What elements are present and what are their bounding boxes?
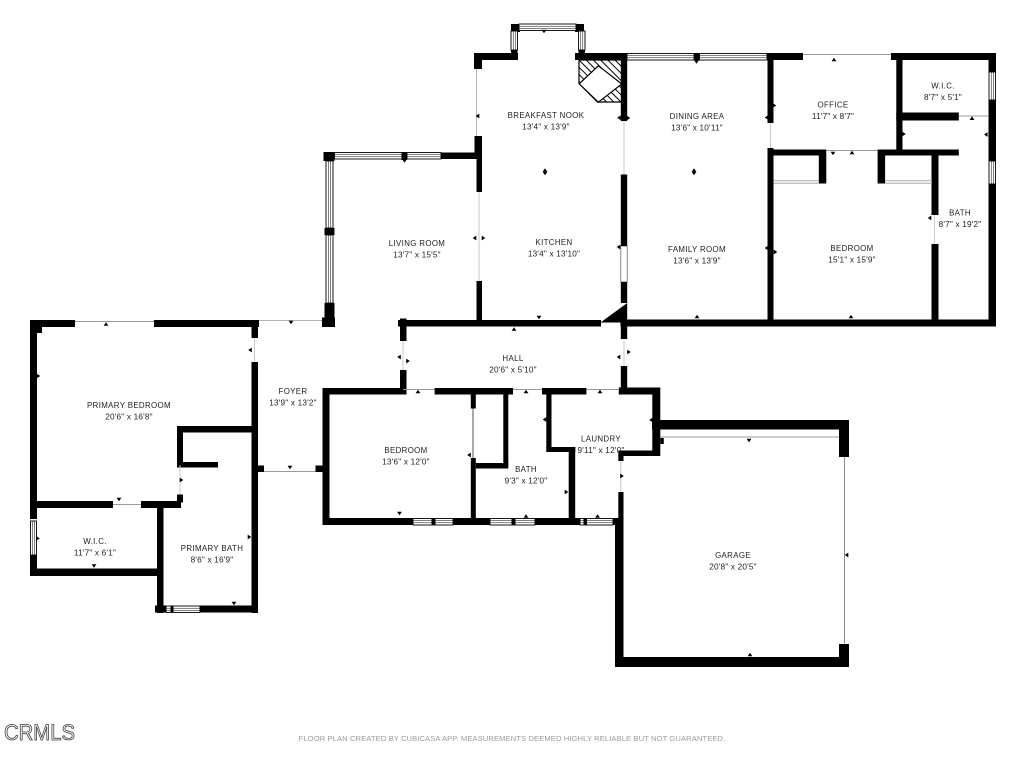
svg-text:OFFICE: OFFICE (817, 101, 848, 110)
svg-text:FLOOR PLAN CREATED BY CUBICASA: FLOOR PLAN CREATED BY CUBICASA APP. MEAS… (299, 734, 726, 743)
svg-text:BREAKFAST NOOK: BREAKFAST NOOK (508, 111, 585, 120)
svg-text:LAUNDRY: LAUNDRY (581, 435, 621, 444)
svg-text:DINING AREA: DINING AREA (670, 112, 725, 121)
svg-text:W.I.C.: W.I.C. (83, 537, 107, 546)
svg-text:BATH: BATH (515, 465, 537, 474)
svg-text:13'6" x 10'11": 13'6" x 10'11" (671, 124, 723, 133)
svg-text:13'4" x 13'9": 13'4" x 13'9" (522, 123, 570, 132)
svg-text:13'6" x 13'9": 13'6" x 13'9" (673, 257, 721, 266)
svg-text:BEDROOM: BEDROOM (384, 446, 427, 455)
svg-text:20'8" x 20'5": 20'8" x 20'5" (709, 563, 757, 572)
svg-text:BEDROOM: BEDROOM (830, 244, 873, 253)
svg-text:BATH: BATH (949, 209, 971, 218)
svg-text:LIVING ROOM: LIVING ROOM (389, 239, 445, 248)
svg-text:13'4" x 13'10": 13'4" x 13'10" (528, 250, 580, 259)
svg-text:13'9" x 13'2": 13'9" x 13'2" (269, 399, 317, 408)
svg-text:PRIMARY BATH: PRIMARY BATH (181, 544, 244, 553)
svg-text:20'6" x 5'10": 20'6" x 5'10" (489, 366, 537, 375)
svg-text:FOYER: FOYER (279, 387, 308, 396)
svg-text:8'7" x 19'2": 8'7" x 19'2" (939, 220, 982, 229)
svg-text:9'11" x 12'0": 9'11" x 12'0" (578, 446, 625, 455)
svg-text:11'7" x 8'7": 11'7" x 8'7" (812, 112, 854, 121)
svg-text:9'3" x 12'0": 9'3" x 12'0" (505, 477, 548, 486)
svg-text:FAMILY ROOM: FAMILY ROOM (668, 245, 726, 254)
svg-text:KITCHEN: KITCHEN (535, 238, 572, 247)
svg-text:PRIMARY BEDROOM: PRIMARY BEDROOM (87, 401, 171, 410)
svg-text:13'6" x 12'0": 13'6" x 12'0" (382, 458, 430, 467)
svg-text:8'6" x 16'9": 8'6" x 16'9" (191, 556, 234, 565)
svg-text:15'1" x 15'9": 15'1" x 15'9" (828, 256, 876, 265)
svg-text:20'6" x 16'8": 20'6" x 16'8" (105, 413, 153, 422)
svg-text:HALL: HALL (502, 354, 523, 363)
svg-text:11'7" x 6'1": 11'7" x 6'1" (74, 549, 116, 558)
svg-text:GARAGE: GARAGE (715, 551, 751, 560)
svg-text:13'7" x 15'5": 13'7" x 15'5" (393, 251, 441, 260)
svg-text:8'7" x 5'1": 8'7" x 5'1" (924, 93, 962, 102)
svg-text:W.I.C.: W.I.C. (931, 82, 955, 91)
svg-text:CRMLS: CRMLS (4, 720, 75, 745)
